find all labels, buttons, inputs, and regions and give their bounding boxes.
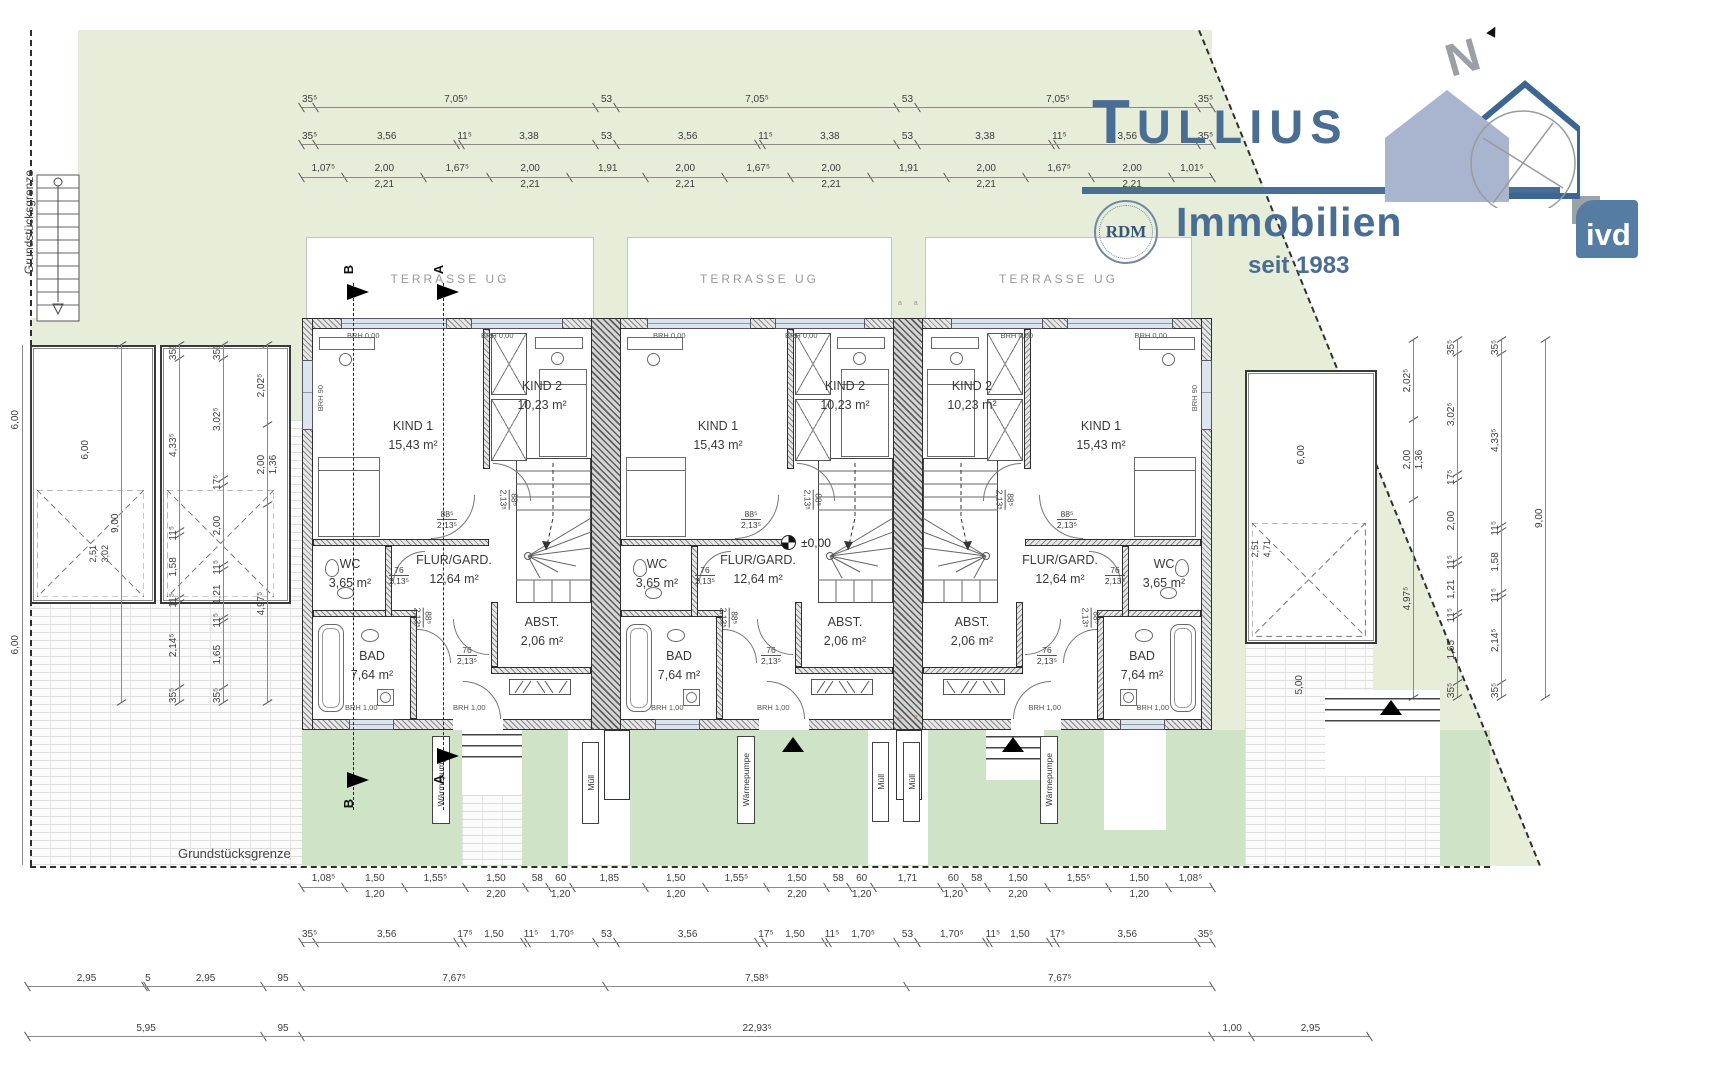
bed-kind1 [626,457,686,537]
wall-abst-south [923,667,1023,674]
dim-cell: 1,70⁵ [918,928,986,943]
terrace-3-label: TERRASSE UG [926,272,1191,286]
room-label-kind1: KIND 115,43 m² [1041,417,1161,455]
room-label-abst: ABST.2,06 m² [499,613,585,651]
room-label-bad: BAD7,64 m² [337,647,407,685]
door-dim-wc: 762,13⁵ [389,565,409,586]
entry-path-5 [1104,730,1166,830]
door-arc-bad [417,629,451,663]
dim-cell: 9,00 [1536,340,1554,697]
dim-cell: 3,38 [918,130,1052,145]
dim-cell: 1,65 [1448,617,1466,682]
dim-cell: 3,56 [617,130,758,145]
terrace-2-label: TERRASSE UG [628,272,891,286]
garage-left-corner-dim-2: 3,02 [100,545,110,563]
dim-cell: 58 [526,872,549,902]
dim-cell: 2,14⁵ [170,603,188,688]
dim-cell: 3,56 [1057,928,1198,943]
dim-cell: 2,02⁵ [258,345,276,425]
wall-bottom [302,719,1212,730]
floor-plan-canvas: Grundstücksgrenze Grundstücksgrenze TERR… [0,0,1712,1080]
dim-cell: 1,71 [874,872,942,902]
window-kind1 [341,318,447,329]
heat-pump-3: Wärmepumpe [1040,736,1058,824]
dim-cell: 601,20 [850,872,874,902]
window-label-top-2: BRH 0,00 [785,331,818,340]
dim-cell: 1,55⁵ [405,872,467,902]
washing-machine [683,689,700,706]
sink-bad [1135,629,1153,642]
dim-cell: 2,00 [1448,481,1466,560]
window-label-bottom-1: BRH 1,00 [345,703,378,712]
joint-mark-bottom: a a [898,714,923,721]
window-label-top-1: BRH 0,00 [1134,331,1167,340]
heat-pump-2: Wärmepumpe [737,736,755,824]
dim-cell: 1,08⁵ [1169,872,1212,902]
door-dim-abst: 762,13⁵ [1037,645,1057,666]
garage-right-corner-dim-2: 4,71 [1262,540,1272,558]
dim-cell: 3,02⁵ [1448,354,1466,474]
sink-bad [667,629,685,642]
window-label-top-2: BRH 0,00 [481,331,514,340]
party-wall-1 [591,318,621,730]
dim-cell: 1,70⁵ [528,928,596,943]
dim-cell: 1,21 [214,570,232,618]
dim-cell: 1,58 [170,536,188,599]
dim-cell: 2,002,21 [947,162,1026,192]
path-brick [462,795,522,865]
window-label-top-1: BRH 0,00 [653,331,686,340]
dim-cell: 7,67⁵ [302,972,607,987]
room-label-flur: FLUR/GARD.12,64 m² [409,551,499,589]
entrance-marker-2 [1002,737,1024,752]
room-label-flur: FLUR/GARD.12,64 m² [1015,551,1105,589]
dim-row-top-2: 35⁵3,5611⁵3,38533,5611⁵3,38533,3811⁵3,56… [302,130,1212,145]
dim-cell: 601,20 [549,872,573,902]
dim-cell: 1,501,20 [646,872,706,902]
dim-cell: 22,93⁵ [302,1022,1212,1037]
ivd-badge: ivd [1576,200,1638,258]
dim-cell: 58 [827,872,850,902]
dim-cell: 1,502,20 [988,872,1048,902]
path-brick [1325,776,1440,866]
section-letter-b-top: B [341,265,356,274]
dim-chain-right-b: 35⁵3,02⁵17⁵2,0011⁵1,2111⁵1,6535⁵ [1448,340,1466,697]
dim-cell: 4,97⁵ [258,505,276,702]
logo-houses-compass [1375,68,1580,208]
door-arc-entry [463,681,501,719]
dim-cell: 7,58⁵ [606,972,907,987]
dim-row-bottom-4: 5,959522,93⁵1,002,95 [28,1022,1369,1037]
dim-cell: 3,38 [462,130,596,145]
dim-row-bottom-2: 35⁵3,5617⁵1,5011⁵1,70⁵533,5617⁵1,5011⁵1,… [302,928,1212,943]
room-label-bad: BAD7,64 m² [645,647,713,685]
door-dim-kind1: 88⁵2,13⁵ [1057,509,1077,530]
logo-title: TULLIUS [1092,92,1349,154]
dim-cell: 1,65 [214,622,232,687]
dim-cell: 1,21 [1448,565,1466,613]
entry-door-gap [453,719,503,730]
logo-subtitle: Immobilien [1176,202,1402,243]
room-label-kind1: KIND 115,43 m² [659,417,777,455]
bed-kind1 [1134,457,1196,537]
desk-kind2 [837,337,885,349]
dim-cell: 2,002,21 [490,162,569,192]
logo-since: seit 1983 [1248,252,1349,280]
dim-cell: 1,501,20 [345,872,405,902]
window-bad [1120,719,1165,730]
dim-cell: 2,00 [214,486,232,565]
dim-chain-left-d: 9,00 [112,345,130,702]
bed-kind1 [318,457,380,537]
unit-2: 88⁵2,13⁵ 88⁵2,13⁵ 762,13⁵ 88⁵2,13⁵ 762,1… [621,329,893,719]
door-arc-bad [723,629,757,663]
wall-kind1-south [1025,539,1201,546]
entry-path-1 [462,730,522,865]
property-line-bottom [30,866,1490,868]
entry-door-gap [1011,719,1061,730]
dim-cell: 35⁵ [1492,683,1510,697]
dim-row-top-3: 1,07⁵2,002,211,67⁵2,002,211,912,002,211,… [302,162,1212,192]
dim-cell: 4,33⁵ [1492,354,1510,526]
joint-mark-top: a a [898,300,923,307]
entry-path-right [1325,690,1440,866]
dim-cell: 3,56 [316,130,457,145]
room-label-kind2: KIND 210,23 m² [495,377,589,415]
staircase [818,458,893,603]
wall-wc-south [1097,610,1201,617]
chair-kind2 [853,352,866,365]
steps [462,734,522,767]
terrace-2: TERRASSE UG [627,237,892,319]
wall-abst-west [491,602,498,667]
radiator [943,679,1005,695]
window-bad [349,719,394,730]
wall-kind1-kind2 [787,329,794,469]
desk-kind2 [535,337,583,349]
garage-right [1245,370,1377,644]
dim-cell: 2,95 [28,972,145,987]
wall-bad-east [716,617,723,719]
dim-chain-left-c: 35⁵4,33⁵11⁵1,5811⁵2,14⁵35⁵ [170,345,188,702]
window-label-bottom-2: BRH 1,00 [453,703,486,712]
unit-1: 88⁵2,13⁵ 88⁵2,13⁵ 762,13⁵ 88⁵2,13⁵ 762,1… [313,329,591,719]
dim-chain-right-d: 9,00 [1536,340,1554,697]
dim-cell: 35⁵ [170,345,188,359]
waste-bin-3: Müll [903,742,920,822]
section-line-b [353,283,354,810]
dim-cell: 7,05⁵ [617,93,897,108]
dim-cell: 17⁵ [214,479,232,486]
dim-chain-right-a: 2,02⁵2,001,364,97⁵ [1404,340,1422,697]
dim-far-left-1: 6,00 [10,410,21,429]
dim-cell: 95 [264,972,302,987]
door-dim-kind2: 88⁵2,13⁵ [994,490,1015,510]
level-icon [781,535,796,550]
north-arrow-tip [1486,24,1500,38]
window-label-bottom-2: BRH 1,00 [1028,703,1061,712]
chair-kind2 [551,352,564,365]
room-label-bad: BAD7,64 m² [1107,647,1177,685]
dim-row-bottom-3: 2,9552,95957,67⁵7,58⁵7,67⁵ [28,972,1212,987]
dim-cell: 35⁵ [1198,928,1212,943]
dim-cell: 2,95 [1252,1022,1369,1037]
chair-kind2 [950,352,963,365]
dim-far-left-2: 6,00 [10,635,21,654]
room-label-flur: FLUR/GARD.12,64 m² [713,551,803,589]
dim-cell: 9,00 [112,345,130,702]
dim-cell: 2,02⁵ [1404,340,1422,420]
window-kind2 [951,318,1043,329]
section-line-a [443,283,444,810]
dim-cell: 1,58 [1492,531,1510,594]
dim-row-top-1: 35⁵7,05⁵537,05⁵537,05⁵35⁵ [302,93,1212,108]
dim-cell: 17⁵ [1448,474,1466,481]
garage-left-1 [30,345,156,604]
path-right-dim: 5,00 [1294,675,1305,694]
dim-cell: 1,67⁵ [725,162,791,192]
dim-cell: 35⁵ [1448,340,1466,354]
door-arc-entry [1013,681,1051,719]
dim-cell: 1,502,20 [466,872,526,902]
dim-cell: 2,001,36 [1404,420,1422,499]
rdm-badge: RDM [1094,200,1158,264]
dim-cell: 1,50 [464,928,524,943]
washing-machine [1120,689,1137,706]
party-wall-2 [893,318,923,730]
dim-cell: 1,501,20 [1109,872,1169,902]
window-label-bottom-1: BRH 1,00 [651,703,684,712]
door-dim-bad: 88⁵2,13⁵ [1080,608,1101,628]
room-label-abst: ABST.2,06 m² [929,613,1015,651]
dim-cell: 4,97⁵ [1404,500,1422,697]
window-side-left [302,360,313,430]
dim-cell: 2,001,36 [258,425,276,504]
waste-bin-2: Müll [872,742,889,822]
dim-cell: 1,85 [573,872,646,902]
wall-kind1-south [313,539,489,546]
dim-chain-left-b: 35⁵3,02⁵17⁵2,0011⁵1,2111⁵1,6535⁵ [214,345,232,702]
garage-left-corner-dim-1: 2,51 [88,545,98,563]
dim-cell: 1,70⁵ [829,928,897,943]
building: 88⁵2,13⁵ 88⁵2,13⁵ 762,13⁵ 88⁵2,13⁵ 762,1… [302,318,1212,730]
dim-cell: 1,55⁵ [1048,872,1110,902]
room-label-wc: WC3,65 m² [625,555,689,593]
room-label-kind1: KIND 115,43 m² [353,417,473,455]
door-dim-kind2: 88⁵2,13⁵ [802,490,823,510]
dim-chain-left-a: 2,02⁵2,001,364,97⁵ [258,345,276,702]
room-label-wc: WC3,65 m² [317,555,383,593]
dim-cell: 1,91 [570,162,646,192]
garage-right-corner-dim-1: 2,51 [1250,540,1260,558]
chair-kind1 [339,353,352,366]
section-letter-a-top: A [431,265,446,274]
wall-abst-south [491,667,591,674]
dim-line-far-left [22,345,23,865]
staircase [923,458,998,603]
door-dim-bad: 88⁵2,13⁵ [412,608,433,628]
dim-cell: 95 [264,1022,302,1037]
door-dim-kind1: 88⁵2,13⁵ [437,509,457,530]
waste-bin-1: Müll [582,742,599,824]
sink-bad [361,629,379,642]
garage-left-width: 6,00 [80,440,91,459]
section-letter-b-bottom: B [341,799,356,808]
room-label-kind2: KIND 210,23 m² [925,377,1019,415]
unit-3: 88⁵2,13⁵ 88⁵2,13⁵ 762,13⁵ 88⁵2,13⁵ 762,1… [923,329,1201,719]
dim-cell: 35⁵ [1492,340,1510,354]
window-bad [655,719,700,730]
window-kind1 [647,318,751,329]
dim-cell: 3,56 [617,928,758,943]
garage-right-width: 6,00 [1296,445,1307,464]
door-dim-kind1: 88⁵2,13⁵ [741,509,761,530]
washing-machine [377,689,394,706]
room-label-wc: WC3,65 m² [1131,555,1197,593]
level-marker: ±0,00 [781,535,831,550]
dim-cell: 2,002,21 [791,162,870,192]
window-label-top-1: BRH 0,00 [347,331,380,340]
wall-kind1-kind2 [1024,329,1031,469]
door-dim-kind2: 88⁵2,13⁵ [498,490,519,510]
dim-cell: 35⁵ [170,688,188,702]
entry-door-gap [759,719,809,730]
radiator [509,679,571,695]
dim-row-bottom-1: 1,08⁵1,501,201,55⁵1,502,2058601,201,851,… [302,872,1212,902]
dim-cell: 1,08⁵ [302,872,345,902]
dim-cell: 1,00 [1212,1022,1252,1037]
window-kind2 [471,318,563,329]
dim-cell: 35⁵ [214,345,232,359]
window-kind1 [1067,318,1173,329]
desk-kind2 [931,337,979,349]
door-dim-bad: 88⁵2,13⁵ [718,608,739,628]
terrace-1: TERRASSE UG [306,237,594,319]
dim-cell: 35⁵ [214,688,232,702]
wall-abst-south [795,667,893,674]
dim-cell: 1,502,20 [767,872,827,902]
window-kind2 [775,318,865,329]
dim-cell: 1,07⁵ [302,162,345,192]
party-wall-extension-1 [604,730,630,800]
wall-wc-south [313,610,417,617]
dim-cell: 3,56 [316,928,457,943]
wall-kind1-kind2 [483,329,490,469]
chair-kind1 [1162,353,1175,366]
dim-cell: 2,95 [147,972,264,987]
dim-cell: 1,91 [871,162,947,192]
dim-cell: 601,20 [941,872,965,902]
wall-abst-west [795,602,802,667]
entrance-marker-3 [1380,700,1402,715]
dim-cell: 58 [965,872,988,902]
dim-cell: 7,67⁵ [907,972,1212,987]
staircase [516,458,591,603]
window-label-side-right: BRH 90 [1190,385,1199,411]
radiator [811,679,873,695]
window-label-top-2: BRH 0,00 [1000,331,1033,340]
dim-chain-right-c: 35⁵4,33⁵11⁵1,5811⁵2,14⁵35⁵ [1492,340,1510,697]
wall-wc-south [621,610,723,617]
dim-cell: 2,14⁵ [1492,598,1510,683]
dim-cell: 3,38 [763,130,897,145]
door-arc-entry [767,681,805,719]
dim-cell: 3,02⁵ [214,359,232,479]
chair-kind1 [647,353,660,366]
dim-cell: 2,002,21 [646,162,725,192]
wall-abst-west [1016,602,1023,667]
window-label-bottom-2: BRH 1,00 [757,703,790,712]
door-dim-abst: 762,13⁵ [457,645,477,666]
door-arc-bad [1063,629,1097,663]
dim-cell: 35⁵ [1448,683,1466,697]
door-dim-abst: 762,13⁵ [761,645,781,666]
boundary-label-left: Grundstücksgrenze [22,170,36,274]
window-label-bottom-1: BRH 1,00 [1136,703,1169,712]
window-label-side-left: BRH 90 [316,385,325,411]
wall-kind1-south [621,539,793,546]
room-label-abst: ABST.2,06 m² [803,613,887,651]
dim-cell: 5,95 [28,1022,264,1037]
room-label-kind2: KIND 210,23 m² [799,377,891,415]
dim-cell: 1,55⁵ [706,872,768,902]
wall-bad-east [410,617,417,719]
external-stair [36,174,80,322]
window-side-right [1201,360,1212,430]
dim-cell: 1,50 [765,928,825,943]
dim-cell: 7,05⁵ [316,93,596,108]
door-dim-wc: 762,13⁵ [1105,565,1125,586]
dim-cell: 1,50 [990,928,1050,943]
dim-cell: 4,33⁵ [170,359,188,531]
boundary-label-bottom: Grundstücksgrenze [178,846,291,861]
section-letter-a-bottom: A [431,775,446,784]
dim-cell: 2,002,21 [345,162,424,192]
dim-cell: 1,67⁵ [424,162,490,192]
entrance-marker-1 [782,737,804,752]
wall-bad-east [1097,617,1104,719]
